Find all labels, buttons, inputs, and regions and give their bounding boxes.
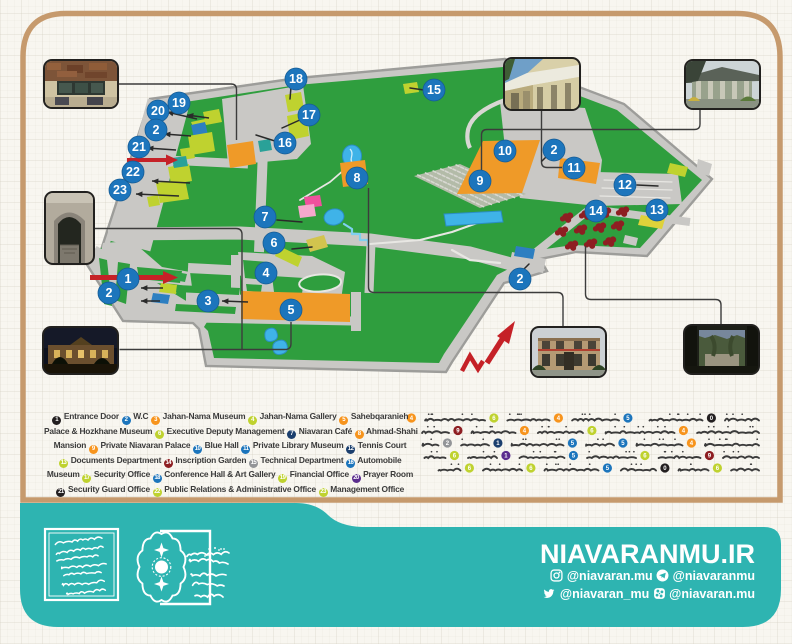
svg-text:8: 8: [354, 171, 361, 185]
svg-text:16: 16: [278, 136, 292, 150]
svg-text:18: 18: [289, 72, 303, 86]
svg-text:2: 2: [517, 272, 524, 286]
svg-text:22: 22: [126, 165, 140, 179]
svg-text:2: 2: [106, 286, 113, 300]
svg-text:4: 4: [263, 266, 270, 280]
svg-text:13: 13: [650, 203, 664, 217]
svg-text:17: 17: [302, 108, 316, 122]
svg-text:12: 12: [618, 178, 632, 192]
svg-text:19: 19: [172, 96, 186, 110]
svg-text:7: 7: [262, 210, 269, 224]
svg-text:5: 5: [288, 303, 295, 317]
svg-text:3: 3: [205, 294, 212, 308]
svg-text:15: 15: [427, 83, 441, 97]
svg-text:2: 2: [153, 123, 160, 137]
svg-text:1: 1: [125, 272, 132, 286]
svg-text:23: 23: [113, 183, 127, 197]
svg-text:2: 2: [551, 143, 558, 157]
svg-text:6: 6: [271, 236, 278, 250]
svg-text:14: 14: [589, 204, 603, 218]
svg-text:10: 10: [498, 144, 512, 158]
svg-text:21: 21: [132, 140, 146, 154]
svg-text:9: 9: [477, 174, 484, 188]
svg-text:11: 11: [567, 161, 580, 175]
svg-text:20: 20: [151, 104, 165, 118]
